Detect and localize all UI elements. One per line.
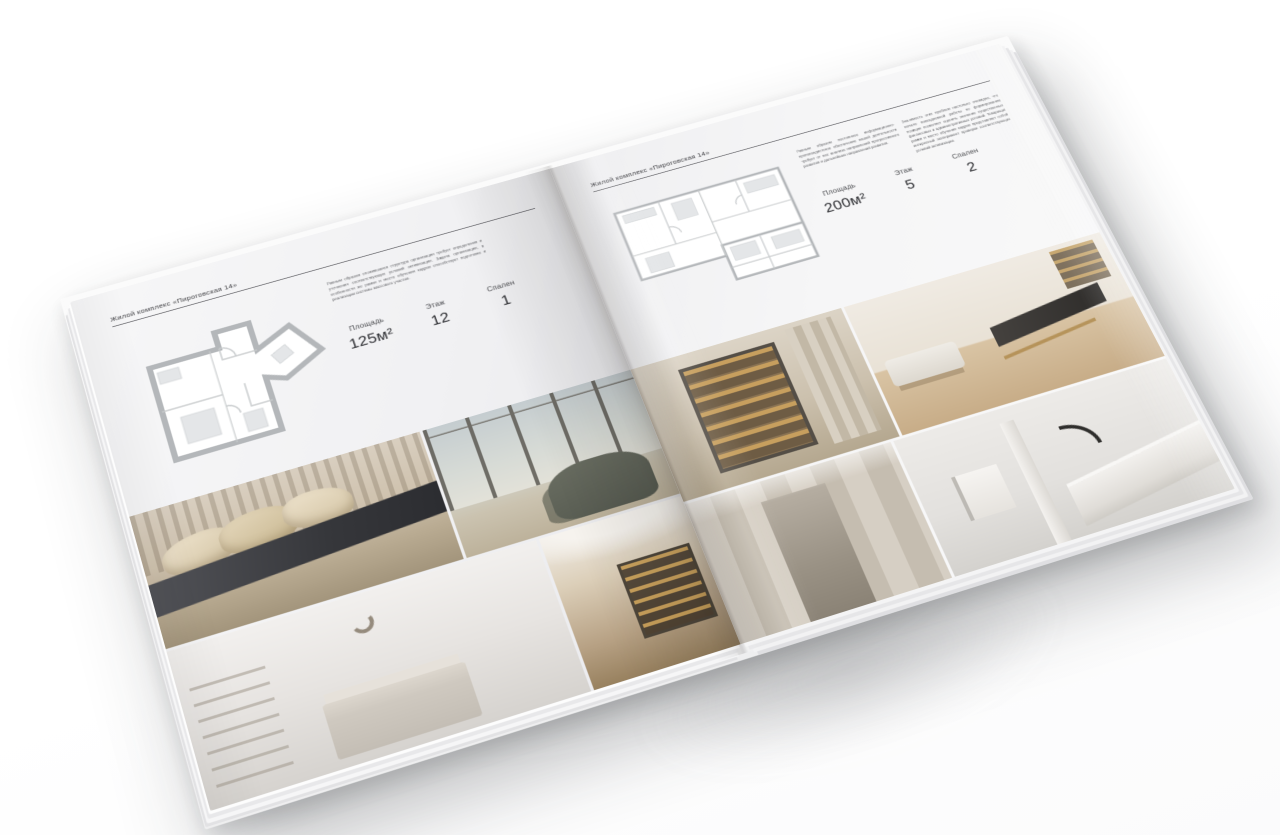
photo-bedroom-with-pillows [129, 432, 463, 649]
spec-area: Площадь 200м² [817, 180, 869, 216]
spec-floor: Этаж 12 [415, 296, 462, 333]
spec-bedrooms: Спален 2 [946, 145, 993, 179]
spec-area: Площадь 125м² [344, 315, 397, 353]
crescent-wall-decor [350, 613, 374, 634]
shelf-niche [1049, 240, 1111, 289]
spec-floor: Этаж 5 [885, 163, 932, 197]
mockup-scene: Жилой комплекс «Пироговская 14» [0, 0, 1280, 835]
spec-bedrooms: Спален 1 [481, 277, 528, 313]
